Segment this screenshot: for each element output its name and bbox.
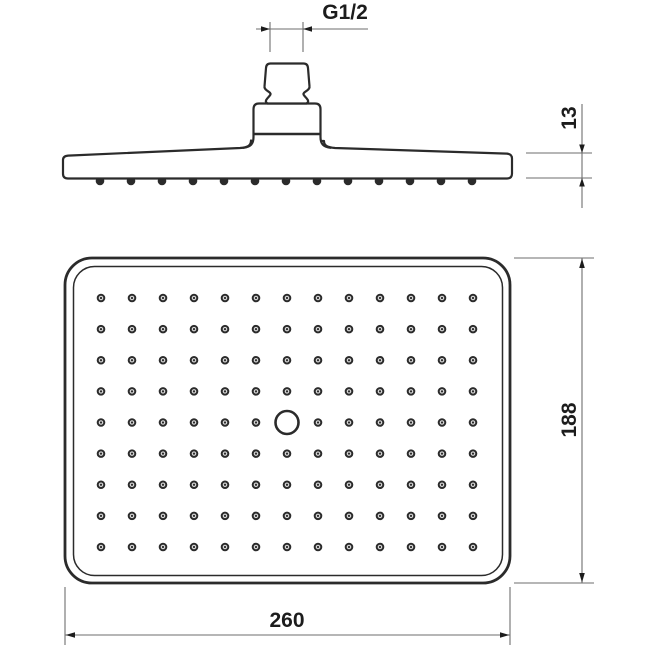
nozzle-center-dot <box>193 546 195 548</box>
technical-drawing: G1/2 13 <box>0 0 650 650</box>
nozzle-center-dot <box>286 359 288 361</box>
face-width-dim-label: 260 <box>269 609 304 632</box>
nozzle-center-dot <box>317 484 319 486</box>
nozzle-center-dot <box>472 359 474 361</box>
nozzle-center-dot <box>224 515 226 517</box>
nozzle-center-dot <box>317 546 319 548</box>
nozzle-center-dot <box>131 421 133 423</box>
nozzle-center-dot <box>348 453 350 455</box>
nozzle-center-dot <box>100 546 102 548</box>
arrowhead <box>500 632 510 638</box>
nozzle-center-dot <box>441 484 443 486</box>
nozzle-center-dot <box>162 359 164 361</box>
nozzle-center-dot <box>100 515 102 517</box>
nozzle-center-dot <box>472 328 474 330</box>
nozzle-center-dot <box>441 515 443 517</box>
dimension-face-width: 260 <box>65 587 510 645</box>
arrowhead <box>579 573 585 583</box>
arrowhead <box>66 632 76 638</box>
nozzle-center-dot <box>224 546 226 548</box>
nozzle-center-dot <box>410 421 412 423</box>
dimension-thickness: 13 <box>526 104 592 208</box>
nozzle-center-dot <box>410 359 412 361</box>
nozzle-center-dot <box>472 297 474 299</box>
nozzle-center-dot <box>162 546 164 548</box>
nozzle-center-dot <box>100 484 102 486</box>
nozzle-center-dot <box>100 421 102 423</box>
nozzle-center-dot <box>131 515 133 517</box>
nozzle-center-dot <box>193 515 195 517</box>
nozzle-center-dot <box>286 515 288 517</box>
nozzle-center-dot <box>441 453 443 455</box>
nozzle-center-dot <box>224 421 226 423</box>
drawing-canvas: G1/2 13 <box>0 0 650 650</box>
nozzle-center-dot <box>286 297 288 299</box>
arrowhead <box>579 178 585 187</box>
side-view: G1/2 13 <box>63 1 592 208</box>
nozzle-center-dot <box>317 421 319 423</box>
arrowhead <box>303 26 312 32</box>
arrowhead <box>261 26 270 32</box>
nozzle-center-dot <box>162 390 164 392</box>
nozzle-center-dot <box>410 297 412 299</box>
dimension-thread: G1/2 <box>256 1 368 52</box>
nozzle-center-dot <box>410 484 412 486</box>
thickness-dim-label: 13 <box>558 106 581 129</box>
nozzle-center-dot <box>379 297 381 299</box>
nozzle-center-dot <box>379 328 381 330</box>
face-view: 188 260 <box>65 258 594 645</box>
nozzle-center-dot <box>317 297 319 299</box>
nozzle-center-dot <box>255 359 257 361</box>
face-height-dim-label: 188 <box>558 402 581 437</box>
thread-tailpiece <box>264 64 309 104</box>
nozzle-center-dot <box>348 359 350 361</box>
nozzle-center-dot <box>441 359 443 361</box>
nozzle-center-dot <box>131 297 133 299</box>
nozzle-center-dot <box>379 453 381 455</box>
nozzle-center-dot <box>410 390 412 392</box>
nozzle-center-dot <box>379 421 381 423</box>
nozzle-center-dot <box>410 546 412 548</box>
nozzle-center-dot <box>255 484 257 486</box>
nozzle-center-dot <box>255 421 257 423</box>
nozzle-center-dot <box>255 328 257 330</box>
nozzle-center-dot <box>193 421 195 423</box>
nozzle-center-dot <box>193 328 195 330</box>
nozzle-center-dot <box>162 515 164 517</box>
nozzle-center-dot <box>317 390 319 392</box>
nozzle-center-dot <box>193 484 195 486</box>
nozzle-center-dot <box>224 297 226 299</box>
nozzle-center-dot <box>193 453 195 455</box>
nozzle-center-dot <box>193 390 195 392</box>
nozzle-center-dot <box>286 390 288 392</box>
nozzle-center-dot <box>131 484 133 486</box>
nozzle-center-dot <box>131 546 133 548</box>
nozzle-center-dot <box>131 453 133 455</box>
nozzle-center-dot <box>286 453 288 455</box>
nozzle-center-dot <box>317 328 319 330</box>
nozzle-center-dot <box>286 484 288 486</box>
nozzle-center-dot <box>379 546 381 548</box>
nozzle-center-dot <box>472 453 474 455</box>
nozzle-center-dot <box>255 297 257 299</box>
nozzle-center-dot <box>472 421 474 423</box>
nozzle-center-dot <box>472 390 474 392</box>
nozzle-center-dot <box>100 390 102 392</box>
nozzle-center-dot <box>162 484 164 486</box>
nozzle-center-dot <box>317 453 319 455</box>
nozzle-center-dot <box>379 359 381 361</box>
nozzle-center-dot <box>255 390 257 392</box>
nozzle-center-dot <box>410 453 412 455</box>
nozzle-center-dot <box>379 390 381 392</box>
nozzle-center-dot <box>100 359 102 361</box>
dimension-face-height: 188 <box>514 258 594 583</box>
thread-dim-label: G1/2 <box>322 1 368 24</box>
nozzle-center-dot <box>224 453 226 455</box>
nozzle-center-dot <box>224 328 226 330</box>
nozzle-center-dot <box>379 515 381 517</box>
nozzle-center-dot <box>255 515 257 517</box>
nozzle-center-dot <box>472 546 474 548</box>
nozzle-center-dot <box>348 328 350 330</box>
nozzle-center-dot <box>317 515 319 517</box>
nozzle-center-dot <box>131 359 133 361</box>
nozzle-center-dot <box>162 328 164 330</box>
nozzle-center-dot <box>162 297 164 299</box>
arrowhead <box>579 145 585 154</box>
nozzle-center-dot <box>255 453 257 455</box>
nozzle-center-dot <box>131 390 133 392</box>
nozzle-center-dot <box>100 328 102 330</box>
nozzle-center-dot <box>193 359 195 361</box>
nozzle-center-dot <box>224 390 226 392</box>
nozzle-center-dot <box>224 359 226 361</box>
nozzle-center-dot <box>348 390 350 392</box>
nozzle-center-dot <box>379 484 381 486</box>
nozzle-center-dot <box>162 421 164 423</box>
nozzle-center-dot <box>472 515 474 517</box>
connector-block <box>244 104 331 148</box>
center-hole <box>276 411 299 434</box>
nozzle-center-dot <box>255 546 257 548</box>
nozzle-center-dot <box>441 297 443 299</box>
nozzle-center-dot <box>348 515 350 517</box>
nozzle-center-dot <box>348 546 350 548</box>
nozzle-center-dot <box>348 484 350 486</box>
arrowhead <box>579 259 585 269</box>
nozzle-center-dot <box>348 297 350 299</box>
nozzle-center-dot <box>441 390 443 392</box>
nozzle-center-dot <box>410 515 412 517</box>
nozzle-center-dot <box>286 328 288 330</box>
nozzle-center-dot <box>410 328 412 330</box>
nozzle-center-dot <box>193 297 195 299</box>
nozzle-center-dot <box>131 328 133 330</box>
nozzle-center-dot <box>286 546 288 548</box>
nozzle-center-dot <box>317 359 319 361</box>
nozzle-center-dot <box>441 421 443 423</box>
nozzle-center-dot <box>100 453 102 455</box>
nozzle-center-dot <box>348 421 350 423</box>
nozzle-center-dot <box>162 453 164 455</box>
nozzle-center-dot <box>224 484 226 486</box>
nozzle-center-dot <box>100 297 102 299</box>
nozzle-center-dot <box>441 328 443 330</box>
nozzle-center-dot <box>472 484 474 486</box>
nozzle-center-dot <box>441 546 443 548</box>
